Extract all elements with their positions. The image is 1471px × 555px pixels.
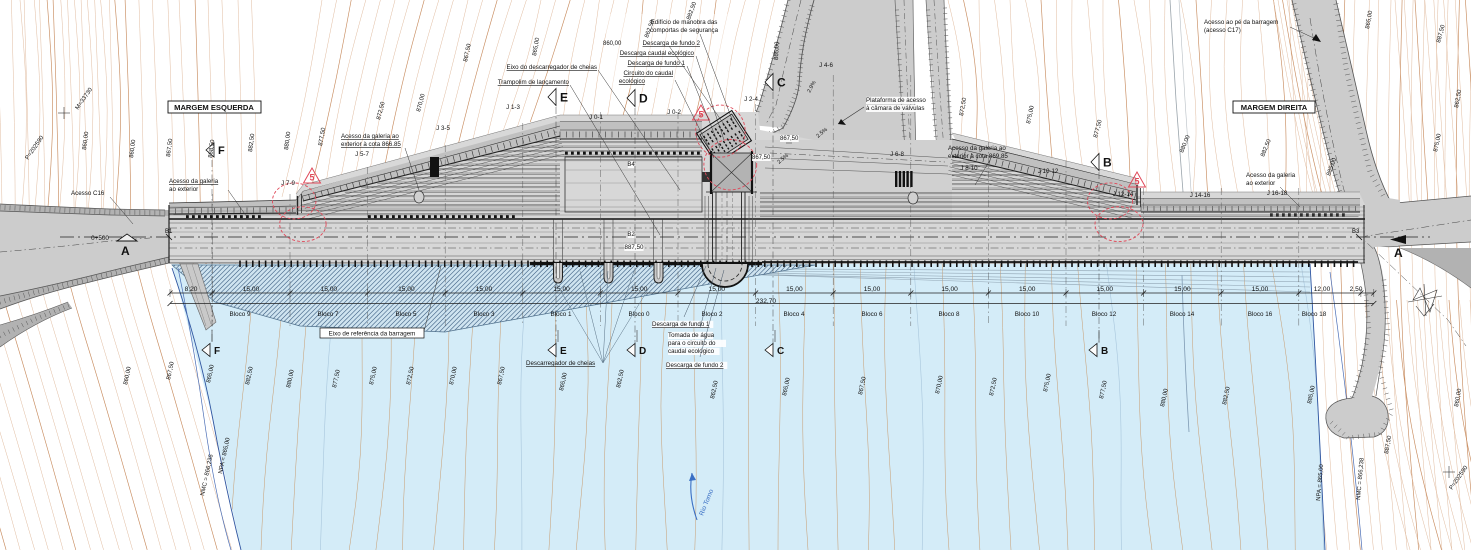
svg-text:B4: B4 xyxy=(627,162,635,168)
svg-text:Bloco 1: Bloco 1 xyxy=(550,311,572,318)
svg-text:J 12-14: J 12-14 xyxy=(1113,191,1134,198)
svg-text:Descarga de fundo 2: Descarga de fundo 2 xyxy=(643,40,701,47)
svg-text:Descarga de fundo 1: Descarga de fundo 1 xyxy=(628,60,686,67)
svg-text:J 0-1: J 0-1 xyxy=(589,114,603,121)
svg-text:exterior à cota 869.85: exterior à cota 869.85 xyxy=(948,153,1008,160)
svg-text:J 0-2: J 0-2 xyxy=(667,109,681,116)
svg-text:8,20: 8,20 xyxy=(185,286,198,293)
svg-text:Descarga caudal ecológico: Descarga caudal ecológico xyxy=(620,50,695,57)
svg-text:15,00: 15,00 xyxy=(1174,286,1191,293)
svg-text:caudal ecológico: caudal ecológico xyxy=(668,348,715,355)
svg-text:(acesso C17): (acesso C17) xyxy=(1204,27,1241,34)
svg-text:Bloco 12: Bloco 12 xyxy=(1092,311,1117,318)
svg-text:J 5-7: J 5-7 xyxy=(355,151,369,158)
svg-text:Acesso da galeria ao: Acesso da galeria ao xyxy=(948,145,1006,152)
svg-text:à câmara de válvulas: à câmara de válvulas xyxy=(866,105,924,112)
svg-text:MARGEM DIREITA: MARGEM DIREITA xyxy=(1241,103,1308,112)
svg-text:ao exterior: ao exterior xyxy=(169,186,198,193)
svg-text:Bloco 8: Bloco 8 xyxy=(938,311,960,318)
svg-text:D: D xyxy=(639,92,648,106)
svg-text:J 1-3: J 1-3 xyxy=(506,104,520,111)
svg-text:Eixo do descarregador de cheia: Eixo do descarregador de cheias xyxy=(507,64,597,71)
svg-text:E: E xyxy=(560,346,567,357)
svg-text:ao exterior: ao exterior xyxy=(1246,180,1275,187)
svg-text:860,00: 860,00 xyxy=(603,41,622,47)
svg-text:15,00: 15,00 xyxy=(941,286,958,293)
svg-text:Acesso ao pé da barragem: Acesso ao pé da barragem xyxy=(1204,19,1278,26)
svg-text:J 16-18: J 16-18 xyxy=(1267,190,1288,197)
svg-text:C: C xyxy=(777,346,784,357)
svg-text:0+500: 0+500 xyxy=(91,235,109,242)
svg-text:J 14-16: J 14-16 xyxy=(1190,192,1211,199)
svg-text:Bloco 6: Bloco 6 xyxy=(861,311,883,318)
svg-text:para o circuito do: para o circuito do xyxy=(668,340,716,347)
svg-text:B2: B2 xyxy=(627,232,635,238)
svg-text:15,00: 15,00 xyxy=(476,286,493,293)
svg-text:5: 5 xyxy=(1134,177,1139,187)
svg-text:Bloco 3: Bloco 3 xyxy=(473,311,495,318)
svg-text:232,70: 232,70 xyxy=(756,298,777,305)
svg-text:Bloco 0: Bloco 0 xyxy=(628,311,650,318)
svg-text:J 6-8: J 6-8 xyxy=(890,151,904,158)
svg-text:15,00: 15,00 xyxy=(1019,286,1036,293)
svg-text:Bloco 10: Bloco 10 xyxy=(1015,311,1040,318)
svg-text:F: F xyxy=(218,145,225,157)
svg-text:J 3-5: J 3-5 xyxy=(436,125,450,132)
svg-text:5: 5 xyxy=(698,110,703,120)
svg-text:15,00: 15,00 xyxy=(1252,286,1269,293)
svg-text:J 7-9: J 7-9 xyxy=(281,180,295,187)
svg-text:Acesso C16: Acesso C16 xyxy=(71,190,105,197)
svg-text:Acesso da galeria: Acesso da galeria xyxy=(1246,172,1296,179)
svg-text:J 2-4: J 2-4 xyxy=(744,96,758,103)
svg-text:Trampolim de lançamento: Trampolim de lançamento xyxy=(498,79,570,86)
svg-text:B: B xyxy=(1101,346,1108,357)
svg-text:Acesso da galeria ao: Acesso da galeria ao xyxy=(341,133,399,140)
svg-text:Plataforma de acesso: Plataforma de acesso xyxy=(866,97,926,104)
svg-text:Descarga de fundo 2: Descarga de fundo 2 xyxy=(666,362,724,369)
svg-text:867,50: 867,50 xyxy=(752,155,771,161)
svg-text:867,50: 867,50 xyxy=(780,136,799,142)
svg-text:Tomada de água: Tomada de água xyxy=(668,332,715,339)
svg-text:Bloco 14: Bloco 14 xyxy=(1170,311,1195,318)
svg-text:Bloco 18: Bloco 18 xyxy=(1302,311,1327,318)
svg-text:J 8-10: J 8-10 xyxy=(960,165,978,172)
svg-text:Bloco 5: Bloco 5 xyxy=(395,311,417,318)
svg-text:MARGEM ESQUERDA: MARGEM ESQUERDA xyxy=(174,103,254,112)
svg-text:Bloco 4: Bloco 4 xyxy=(783,311,805,318)
svg-text:Bloco 9: Bloco 9 xyxy=(229,311,251,318)
svg-text:Circuito do caudal: Circuito do caudal xyxy=(623,70,673,77)
svg-text:Bloco 16: Bloco 16 xyxy=(1248,311,1273,318)
svg-text:Edifício de manobra das: Edifício de manobra das xyxy=(651,19,718,26)
svg-text:15,00: 15,00 xyxy=(243,286,260,293)
svg-text:Acesso da galeria: Acesso da galeria xyxy=(169,178,219,185)
svg-text:865,00: 865,00 xyxy=(774,41,781,60)
svg-text:887,50: 887,50 xyxy=(625,244,644,251)
svg-text:F: F xyxy=(214,346,220,357)
svg-text:exterior à cota 866.85: exterior à cota 866.85 xyxy=(341,141,401,148)
svg-text:Bloco 7: Bloco 7 xyxy=(317,311,339,318)
svg-text:15,00: 15,00 xyxy=(864,286,881,293)
svg-text:comportas de segurança: comportas de segurança xyxy=(650,27,719,34)
svg-text:C: C xyxy=(777,76,786,90)
svg-text:15,00: 15,00 xyxy=(321,286,338,293)
svg-text:15,00: 15,00 xyxy=(398,286,415,293)
svg-text:B: B xyxy=(1103,156,1112,170)
svg-text:A: A xyxy=(1394,246,1403,260)
svg-text:Descarga de fundo 1: Descarga de fundo 1 xyxy=(652,321,710,328)
svg-text:15,00: 15,00 xyxy=(631,286,648,293)
svg-text:Descarregador de cheias: Descarregador de cheias xyxy=(526,360,595,367)
svg-text:ecológico: ecológico xyxy=(619,78,646,85)
svg-text:12,00: 12,00 xyxy=(1314,286,1331,293)
svg-text:E: E xyxy=(560,91,568,105)
svg-text:J 10-12: J 10-12 xyxy=(1038,168,1059,175)
svg-text:2,50: 2,50 xyxy=(1350,286,1363,293)
svg-text:5: 5 xyxy=(309,173,314,183)
svg-text:Eixo de referência da barragem: Eixo de referência da barragem xyxy=(329,331,416,338)
svg-text:A: A xyxy=(121,244,130,258)
svg-text:D: D xyxy=(639,346,646,357)
svg-text:J 4-6: J 4-6 xyxy=(819,62,833,69)
svg-text:15,00: 15,00 xyxy=(786,286,803,293)
